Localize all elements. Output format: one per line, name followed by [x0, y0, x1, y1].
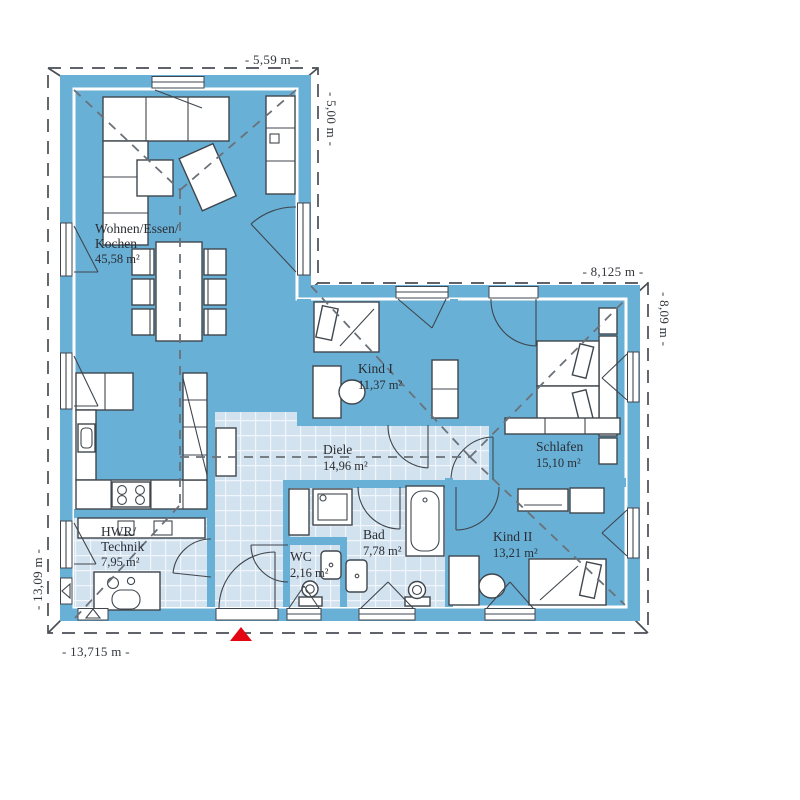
stove: [112, 482, 150, 507]
entrance-marker-icon: [230, 627, 252, 641]
kind2-bed: [529, 559, 606, 605]
kitchen-sink: [78, 424, 95, 452]
bad-sink: [346, 560, 367, 592]
dim-right: - 8,09 m -: [657, 292, 672, 346]
wohnen-label-line2: Kochen: [95, 236, 137, 251]
left-wall-hatch: [61, 578, 73, 604]
dim-bottom: - 13,715 m -: [62, 644, 130, 659]
laundry-sink-unit: [94, 572, 160, 610]
shower: [313, 489, 352, 525]
dim-top: - 5,59 m -: [245, 52, 299, 67]
kind1-label: Kind I: [358, 361, 393, 376]
hwr-label-line2: Technik: [101, 539, 145, 554]
floor-plan-canvas: Wohnen/Essen/ Kochen 45,58 m² Kind I 11,…: [0, 0, 800, 800]
kind2-area: 13,21 m²: [493, 546, 538, 560]
schlafen-area: 15,10 m²: [536, 456, 581, 470]
diele-label: Diele: [323, 442, 352, 457]
kind1-bed: [314, 302, 379, 352]
dining-table-set: [132, 242, 226, 341]
schlafen-wardrobe: [505, 418, 620, 434]
wohnen-label-line1: Wohnen/Essen/: [95, 221, 179, 236]
dim-top-wing-right: - 5,00 m -: [324, 92, 339, 146]
bad-label: Bad: [363, 527, 385, 542]
bathtub: [406, 486, 444, 556]
kind2-label: Kind II: [493, 529, 533, 544]
dim-right-wing-top: - 8,125 m -: [582, 264, 643, 279]
floor-plan-page: Wohnen/Essen/ Kochen 45,58 m² Kind I 11,…: [0, 0, 800, 800]
hall-cabinet: [216, 428, 236, 476]
kind1-wardrobe: [432, 360, 458, 418]
dim-left: - 13,09 m -: [30, 549, 45, 610]
hwr-area: 7,95 m²: [101, 555, 140, 569]
wc-area: 2,16 m²: [290, 566, 329, 580]
kind1-area: 11,37 m²: [358, 378, 403, 392]
wohnen-area: 45,58 m²: [95, 252, 140, 266]
hwr-label-line1: HWR/: [101, 524, 136, 539]
schlafen-nightstand-1: [599, 308, 617, 334]
wc-label: WC: [290, 549, 312, 564]
bad-cabinet: [289, 489, 309, 535]
schlafen-label: Schlafen: [536, 439, 583, 454]
diele-area: 14,96 m²: [323, 459, 368, 473]
bad-area: 7,78 m²: [363, 544, 402, 558]
schlafen-nightstand-2: [599, 438, 617, 464]
kind2-shelves: [518, 488, 604, 513]
hwr-cabinets: [78, 518, 205, 538]
tv-sideboard: [266, 96, 295, 194]
hwr-south-hatch: [78, 609, 108, 621]
